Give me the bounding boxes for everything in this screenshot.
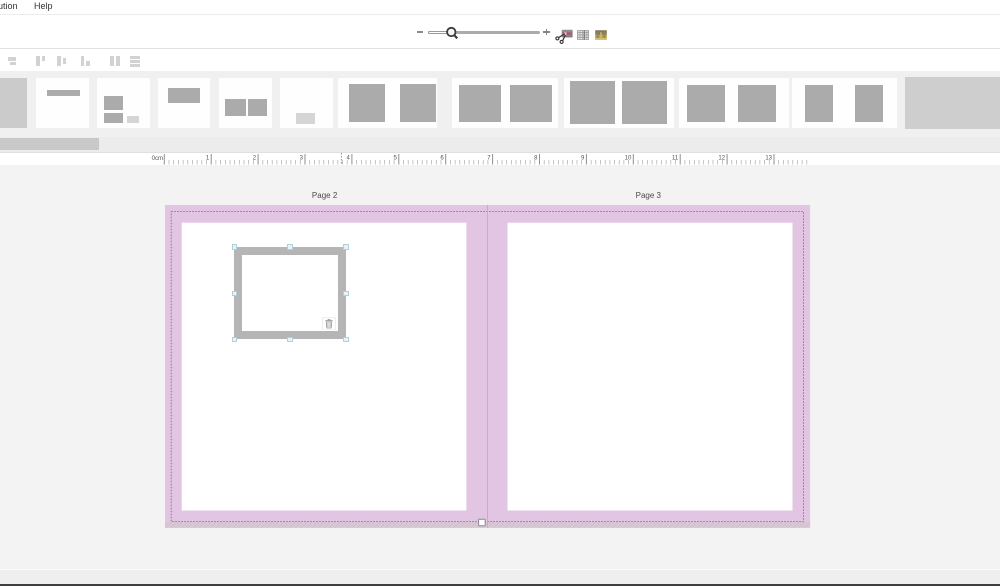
svg-text:11: 11 xyxy=(672,155,679,161)
svg-text:0cm: 0cm xyxy=(152,156,163,162)
svg-text:13: 13 xyxy=(765,155,772,161)
svg-text:5: 5 xyxy=(393,155,397,161)
svg-text:4: 4 xyxy=(347,155,351,161)
svg-text:7: 7 xyxy=(487,155,491,161)
svg-text:12: 12 xyxy=(718,155,725,161)
svg-text:2: 2 xyxy=(253,155,257,161)
svg-text:6: 6 xyxy=(440,155,444,161)
svg-text:1: 1 xyxy=(206,155,210,161)
svg-text:3: 3 xyxy=(300,155,304,161)
svg-text:9: 9 xyxy=(581,155,585,161)
svg-text:10: 10 xyxy=(625,155,632,161)
svg-text:8: 8 xyxy=(534,155,538,161)
